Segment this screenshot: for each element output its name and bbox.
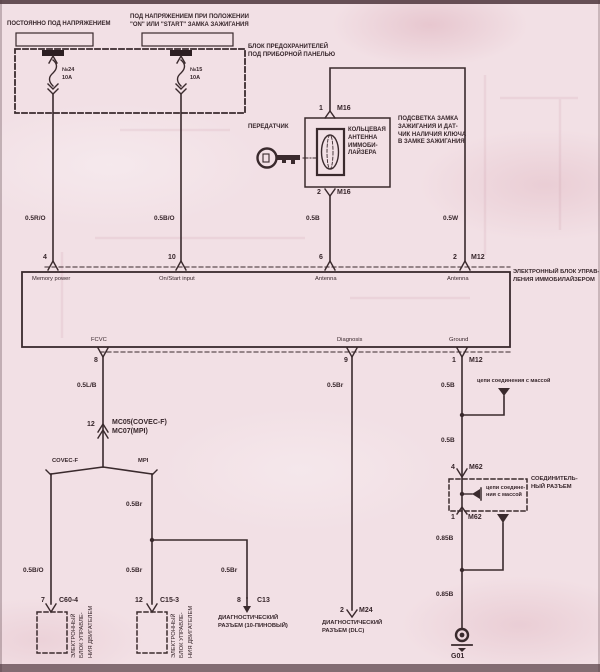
engine-ecu-label-line3: НИЯ ДВИГАТЕЛЕМ xyxy=(87,596,95,658)
c60-pin-number: 7 xyxy=(41,596,45,605)
ecu-pin2-label: Antenna xyxy=(447,276,469,284)
mc07-connector: MC07(MPI) xyxy=(112,427,148,436)
ecu-pin6-label: Antenna xyxy=(315,276,337,284)
fuse-15-icon xyxy=(170,50,192,94)
ecu-pin10-number: 10 xyxy=(168,253,176,262)
transmitter-label: ПЕРЕДАТЧИК xyxy=(248,124,288,132)
mc05-connector: MC05(COVEC-F) xyxy=(112,418,167,427)
g01-label: G01 xyxy=(451,652,464,661)
wire-label-mpi3: 0.5Br xyxy=(221,567,237,575)
antenna-coil-line2: АНТЕННА xyxy=(348,135,386,143)
antenna-coil-line4: ЛАЙЗЕРА xyxy=(348,150,386,158)
engine-ecu-label-c15: ЭЛЕКТРОННЫЙ БЛОК УПРАВЛЕ- НИЯ ДВИГАТЕЛЕМ xyxy=(170,596,195,658)
c15-pin-number: 12 xyxy=(135,596,143,605)
fuse-block-title-1: БЛОК ПРЕДОХРАНИТЕЛЕЙ xyxy=(248,44,328,52)
ecu-pin10-label: On/Start input xyxy=(159,276,195,284)
ecu-pin2-connector: M12 xyxy=(471,253,485,262)
fuse2-number: №15 xyxy=(190,67,202,74)
wire-label-mpi1: 0.5Br xyxy=(126,501,142,509)
engine-ecu-connector-c15 xyxy=(137,612,167,653)
ign-hot-box xyxy=(142,33,233,46)
c13-description-line1: ДИАГНОСТИЧЕСКИЙ xyxy=(218,615,288,623)
pin-2-m16-connector: M16 xyxy=(337,188,351,197)
engine-ecu-connector-c60 xyxy=(37,612,67,653)
antenna-note-line1: ПОДСВЕТКА ЗАМКА xyxy=(398,116,466,124)
m24-description-line1: ДИАГНОСТИЧЕСКИЙ xyxy=(322,620,382,628)
ecu-pin1-connector: M12 xyxy=(469,356,483,365)
ecu-pin8-number: 8 xyxy=(94,356,98,365)
c13-pin-number: 8 xyxy=(237,596,241,605)
m24-description-line2: РАЗЪЕМ (DLC) xyxy=(322,628,382,636)
wire-label-gnd3: 0.85B xyxy=(436,535,453,543)
fuse2-rating: 10A xyxy=(190,75,200,82)
wiring-diagram-page: ПОСТОЯННО ПОД НАПРЯЖЕНИЕМ ПОД НАПРЯЖЕНИЕ… xyxy=(0,0,600,672)
ecu-pin4-number: 4 xyxy=(43,253,47,262)
wire-antenna-bottom xyxy=(325,189,335,261)
antenna-coil-label: КОЛЬЦЕВАЯ АНТЕННА ИММОБИ- ЛАЙЗЕРА xyxy=(348,127,386,158)
ecu-pin6-number: 6 xyxy=(319,253,323,262)
antenna-note-line2: ЗАЖИГАНИЯ И ДАТ- xyxy=(398,124,466,132)
ecu-pin9-number: 9 xyxy=(344,356,348,365)
ecu-pin9-label: Diagnosis xyxy=(337,337,362,345)
engine-ecu-label-line3: НИЯ ДВИГАТЕЛЕМ xyxy=(187,596,195,658)
fuse1-number: №24 xyxy=(62,67,74,74)
c13-description: ДИАГНОСТИЧЕСКИЙ РАЗЪЕМ (10-ПИНОВЫЙ) xyxy=(218,615,288,631)
wire-mpi-branch xyxy=(147,474,251,613)
m62-top-connector: M62 xyxy=(469,463,483,472)
mc-pin-number: 12 xyxy=(87,420,95,429)
wire-label-gnd1: 0.5B xyxy=(441,382,455,390)
diagram-artwork xyxy=(0,0,600,672)
ecu-top-pin-chevrons xyxy=(48,261,470,270)
wire-label-covec: 0.5B/O xyxy=(23,567,44,575)
wire-covec-branch xyxy=(46,474,56,612)
wire-label-diag: 0.5Br xyxy=(327,382,343,390)
immobilizer-ecu-name: ЭЛЕКТРОННЫЙ БЛОК УПРАВ- ЛЕНИЯ ИММОБИЛАЙЗ… xyxy=(513,269,599,285)
ecu-pin8-label: FCVC xyxy=(91,337,107,345)
joint-connector-title: СОЕДИНИТЕЛЬ- НЫЙ РАЗЪЕМ xyxy=(531,476,578,492)
wire-label-ant1: 0.5B xyxy=(306,215,320,223)
pin-1-m16-connector: M16 xyxy=(337,104,351,113)
pin-1-m16-number: 1 xyxy=(319,104,323,113)
antenna-note: ПОДСВЕТКА ЗАМКА ЗАЖИГАНИЯ И ДАТ- ЧИК НАЛ… xyxy=(398,116,466,147)
joint-note: цепи соедине- ния с массой xyxy=(486,485,525,499)
bleed-through-ghost-lines xyxy=(62,75,578,338)
ground-g01-icon xyxy=(452,629,472,652)
ecu-pin2-number: 2 xyxy=(453,253,457,262)
m24-description: ДИАГНОСТИЧЕСКИЙ РАЗЪЕМ (DLC) xyxy=(322,620,382,636)
engine-ecu-label-c60: ЭЛЕКТРОННЫЙ БЛОК УПРАВЛЕ- НИЯ ДВИГАТЕЛЕМ xyxy=(70,596,95,658)
joint-connector-title-line2: НЫЙ РАЗЪЕМ xyxy=(531,484,578,492)
m62-bottom-pin-number: 1 xyxy=(451,513,455,522)
m24-pin-number: 2 xyxy=(340,606,344,615)
fuse-block-title-2: ПОД ПРИБОРНОЙ ПАНЕЛЬЮ xyxy=(248,52,335,60)
ecu-pin4-label: Memory power xyxy=(32,276,70,284)
m62-bottom-connector: M62 xyxy=(468,513,482,522)
c13-connector: C13 xyxy=(257,596,270,605)
always-hot-box xyxy=(16,33,93,46)
covec-branch-label: COVEC-F xyxy=(52,458,78,466)
fuse1-rating: 10A xyxy=(62,75,72,82)
antenna-note-line4: В ЗАМКЕ ЗАЖИГАНИЯ xyxy=(398,139,466,147)
wire-diagnosis xyxy=(347,357,357,617)
pin-2-m16-number: 2 xyxy=(317,188,321,197)
always-hot-label: ПОСТОЯННО ПОД НАПРЯЖЕНИЕМ xyxy=(7,21,111,29)
wire-antenna-top xyxy=(325,68,465,261)
mpi-branch-label: MPI xyxy=(138,458,148,466)
wire-label-onstart: 0.5B/O xyxy=(154,215,175,223)
wire-label-gnd2: 0.5B xyxy=(441,437,455,445)
immobilizer-ecu-name-line1: ЭЛЕКТРОННЫЙ БЛОК УПРАВ- xyxy=(513,269,599,277)
wire-label-ant2: 0.5W xyxy=(443,215,458,223)
wire-label-fcvc: 0.5L/B xyxy=(77,382,97,390)
wire-label-mpi2: 0.5Br xyxy=(126,567,142,575)
wire-label-gnd4: 0.85B xyxy=(436,591,453,599)
ecu-pin1-number: 1 xyxy=(452,356,456,365)
engine-ecu-label-line2: БЛОК УПРАВЛЕ- xyxy=(78,596,86,658)
ground-circuits-note: цепи соединения с массой xyxy=(477,378,550,385)
antenna-note-line3: ЧИК НАЛИЧИЯ КЛЮЧА xyxy=(398,132,466,140)
antenna-coil-line1: КОЛЬЦЕВАЯ xyxy=(348,127,386,135)
ign-hot-label-1: ПОД НАПРЯЖЕНИЕМ ПРИ ПОЛОЖЕНИИ xyxy=(130,14,249,22)
engine-ecu-label-line1: ЭЛЕКТРОННЫЙ xyxy=(70,596,78,658)
c13-description-line2: РАЗЪЕМ (10-ПИНОВЫЙ) xyxy=(218,623,288,631)
m24-connector: M24 xyxy=(359,606,373,615)
joint-connector-title-line1: СОЕДИНИТЕЛЬ- xyxy=(531,476,578,484)
engine-ecu-label-line1: ЭЛЕКТРОННЫЙ xyxy=(170,596,178,658)
immobilizer-ecu-name-line2: ЛЕНИЯ ИММОБИЛАЙЗЕРОМ xyxy=(513,277,599,285)
wire-label-memory: 0.5R/O xyxy=(25,215,46,223)
key-transmitter-icon xyxy=(258,149,317,168)
ign-hot-label-2: "ON" ИЛИ "START" ЗАМКА ЗАЖИГАНИЯ xyxy=(130,22,249,30)
joint-note-line2: ния с массой xyxy=(486,492,525,499)
engine-ecu-label-line2: БЛОК УПРАВЛЕ- xyxy=(178,596,186,658)
m62-top-pin-number: 4 xyxy=(451,463,455,472)
ecu-pin1-label: Ground xyxy=(449,337,468,345)
fuse-24-icon xyxy=(42,50,64,94)
